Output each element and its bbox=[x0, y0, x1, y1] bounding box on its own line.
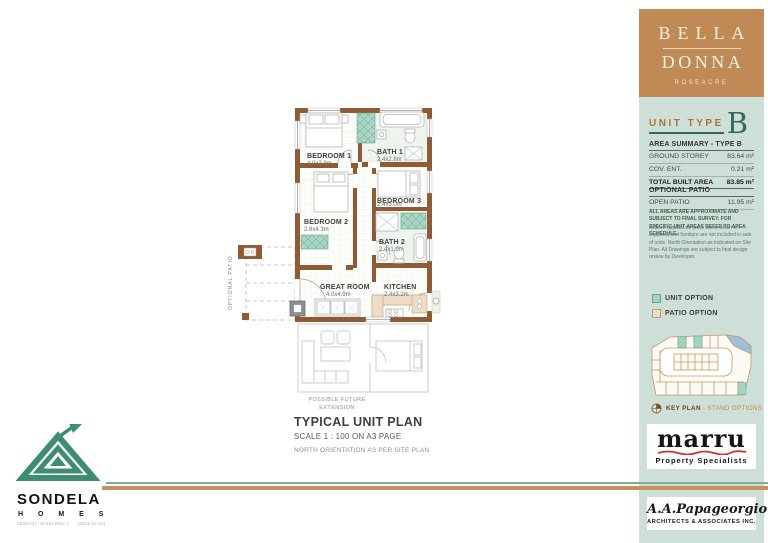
optional-patio-header: OPTIONAL PATIO bbox=[649, 187, 754, 197]
stand-option-teal bbox=[694, 336, 702, 348]
legend: UNIT OPTION PATIO OPTION bbox=[652, 294, 718, 324]
unit-type-heading: UNIT TYPE B bbox=[649, 113, 754, 134]
optional-patio-table: OPTIONAL PATIO OPEN PATIO 11.95 m² bbox=[649, 187, 754, 210]
room-dims: 4.0x2.8m bbox=[307, 161, 332, 167]
room-label: BATH 1 bbox=[377, 149, 403, 156]
optional-patio-label: OPTIONAL PATIO bbox=[228, 255, 234, 310]
table-row: COV. ENT. 0.21 m² bbox=[649, 164, 754, 177]
future-extension-label-2: EXTENSION bbox=[319, 405, 354, 411]
legend-patio-option: PATIO OPTION bbox=[652, 309, 718, 318]
patio-braai bbox=[238, 245, 262, 320]
room-dims-3: 2.4x3.0m bbox=[377, 202, 402, 208]
room-label: GREAT ROOM bbox=[320, 284, 370, 291]
room-dims: 2.4x1.9m bbox=[379, 247, 404, 253]
room-dims: 4.0x4.9m bbox=[326, 292, 351, 298]
legend-unit-option: UNIT OPTION bbox=[652, 294, 718, 303]
room-dims: 2.4x3.2m bbox=[384, 292, 409, 298]
key-plan-caption: KEY PLAN - STAND OPTIONS bbox=[651, 403, 762, 414]
marru-wordmark: marru bbox=[647, 427, 756, 450]
future-extension bbox=[298, 324, 428, 392]
compass-icon bbox=[651, 403, 662, 414]
disclaimer-secondary: Kitchen appliances (excl. stove which is… bbox=[649, 225, 754, 261]
architect-logo: A.A.Papageorgiou ARCHITECTS & ASSOCIATES… bbox=[647, 497, 756, 530]
brand-name-line1: BELLA bbox=[646, 23, 764, 44]
floor-plan: OPTIONAL PATIO POSSIBLE FUTURE EXTENSION bbox=[220, 95, 470, 425]
room-label: BEDROOM 2 bbox=[304, 219, 348, 226]
future-extension-label-1: POSSIBLE FUTURE bbox=[308, 397, 365, 403]
sidebar-panel: UNIT TYPE B AREA SUMMARY - TYPE B GROUND… bbox=[639, 97, 764, 543]
info-sidebar: BELLA DONNA ROSEACRE UNIT TYPE B AREA SU… bbox=[639, 9, 764, 543]
marru-tagline: Property Specialists bbox=[647, 456, 756, 465]
sondela-homes-label: H O M E S bbox=[18, 511, 146, 518]
brand-name-line2: DONNA bbox=[642, 52, 764, 73]
patio-option-swatch-icon bbox=[652, 309, 661, 318]
unit-option-swatch-icon bbox=[652, 294, 661, 303]
table-row: OPEN PATIO 11.95 m² bbox=[649, 197, 754, 210]
scale-note: SCALE 1 : 100 ON A3 PAGE bbox=[294, 432, 429, 441]
marru-logo: marru Property Specialists bbox=[647, 424, 756, 469]
unit-type-label: UNIT TYPE bbox=[649, 118, 724, 134]
unit-type-letter: B bbox=[727, 113, 748, 134]
room-dims: 2.8x4.3m bbox=[304, 227, 329, 233]
key-plan-suffix: - STAND OPTIONS bbox=[703, 405, 762, 412]
table-row: GROUND STOREY 83.64 m² bbox=[649, 151, 754, 164]
room-dims: 2.4x2.8m bbox=[377, 157, 402, 163]
sondela-wordmark: SONDELA bbox=[17, 491, 146, 508]
area-summary-table: AREA SUMMARY - TYPE B GROUND STOREY 83.6… bbox=[649, 141, 754, 189]
stand-option-teal-2 bbox=[738, 383, 746, 395]
plan-sheet: OPTIONAL PATIO POSSIBLE FUTURE EXTENSION bbox=[0, 0, 768, 543]
room-label: BATH 2 bbox=[379, 239, 405, 246]
room-label: BEDROOM 1 bbox=[307, 153, 351, 160]
page-title: TYPICAL UNIT PLAN bbox=[294, 415, 429, 429]
architect-name: A.A.Papageorgiou bbox=[647, 502, 756, 517]
sondela-logo: SONDELA H O M E S 0533-047- M 610 REV J … bbox=[16, 424, 146, 527]
drawing-revision: 0533-047- M 610 REV J (2021-12-10) bbox=[17, 522, 146, 527]
doc-date: (2021-12-10) bbox=[77, 522, 105, 527]
separator-line-green bbox=[106, 482, 768, 484]
north-note: NORTH ORIENTATION AS PER SITE PLAN bbox=[294, 447, 429, 454]
brand-divider bbox=[663, 48, 741, 49]
sondela-triangle-icon bbox=[16, 424, 100, 482]
stand-option-hatched bbox=[678, 337, 686, 348]
key-plan-map bbox=[648, 332, 755, 398]
separator-line-tan bbox=[102, 486, 768, 490]
architect-subtitle: ARCHITECTS & ASSOCIATES INC. bbox=[647, 519, 756, 525]
area-summary-header: AREA SUMMARY - TYPE B bbox=[649, 141, 754, 151]
brand-subtitle: ROSEACRE bbox=[639, 80, 764, 86]
room-label: KITCHEN bbox=[384, 284, 417, 291]
title-block: TYPICAL UNIT PLAN SCALE 1 : 100 ON A3 PA… bbox=[294, 415, 429, 454]
doc-ref: 0533-047- M 610 REV J bbox=[17, 522, 68, 527]
key-plan-label: KEY PLAN bbox=[666, 405, 701, 412]
development-brand: BELLA DONNA ROSEACRE bbox=[639, 9, 764, 97]
